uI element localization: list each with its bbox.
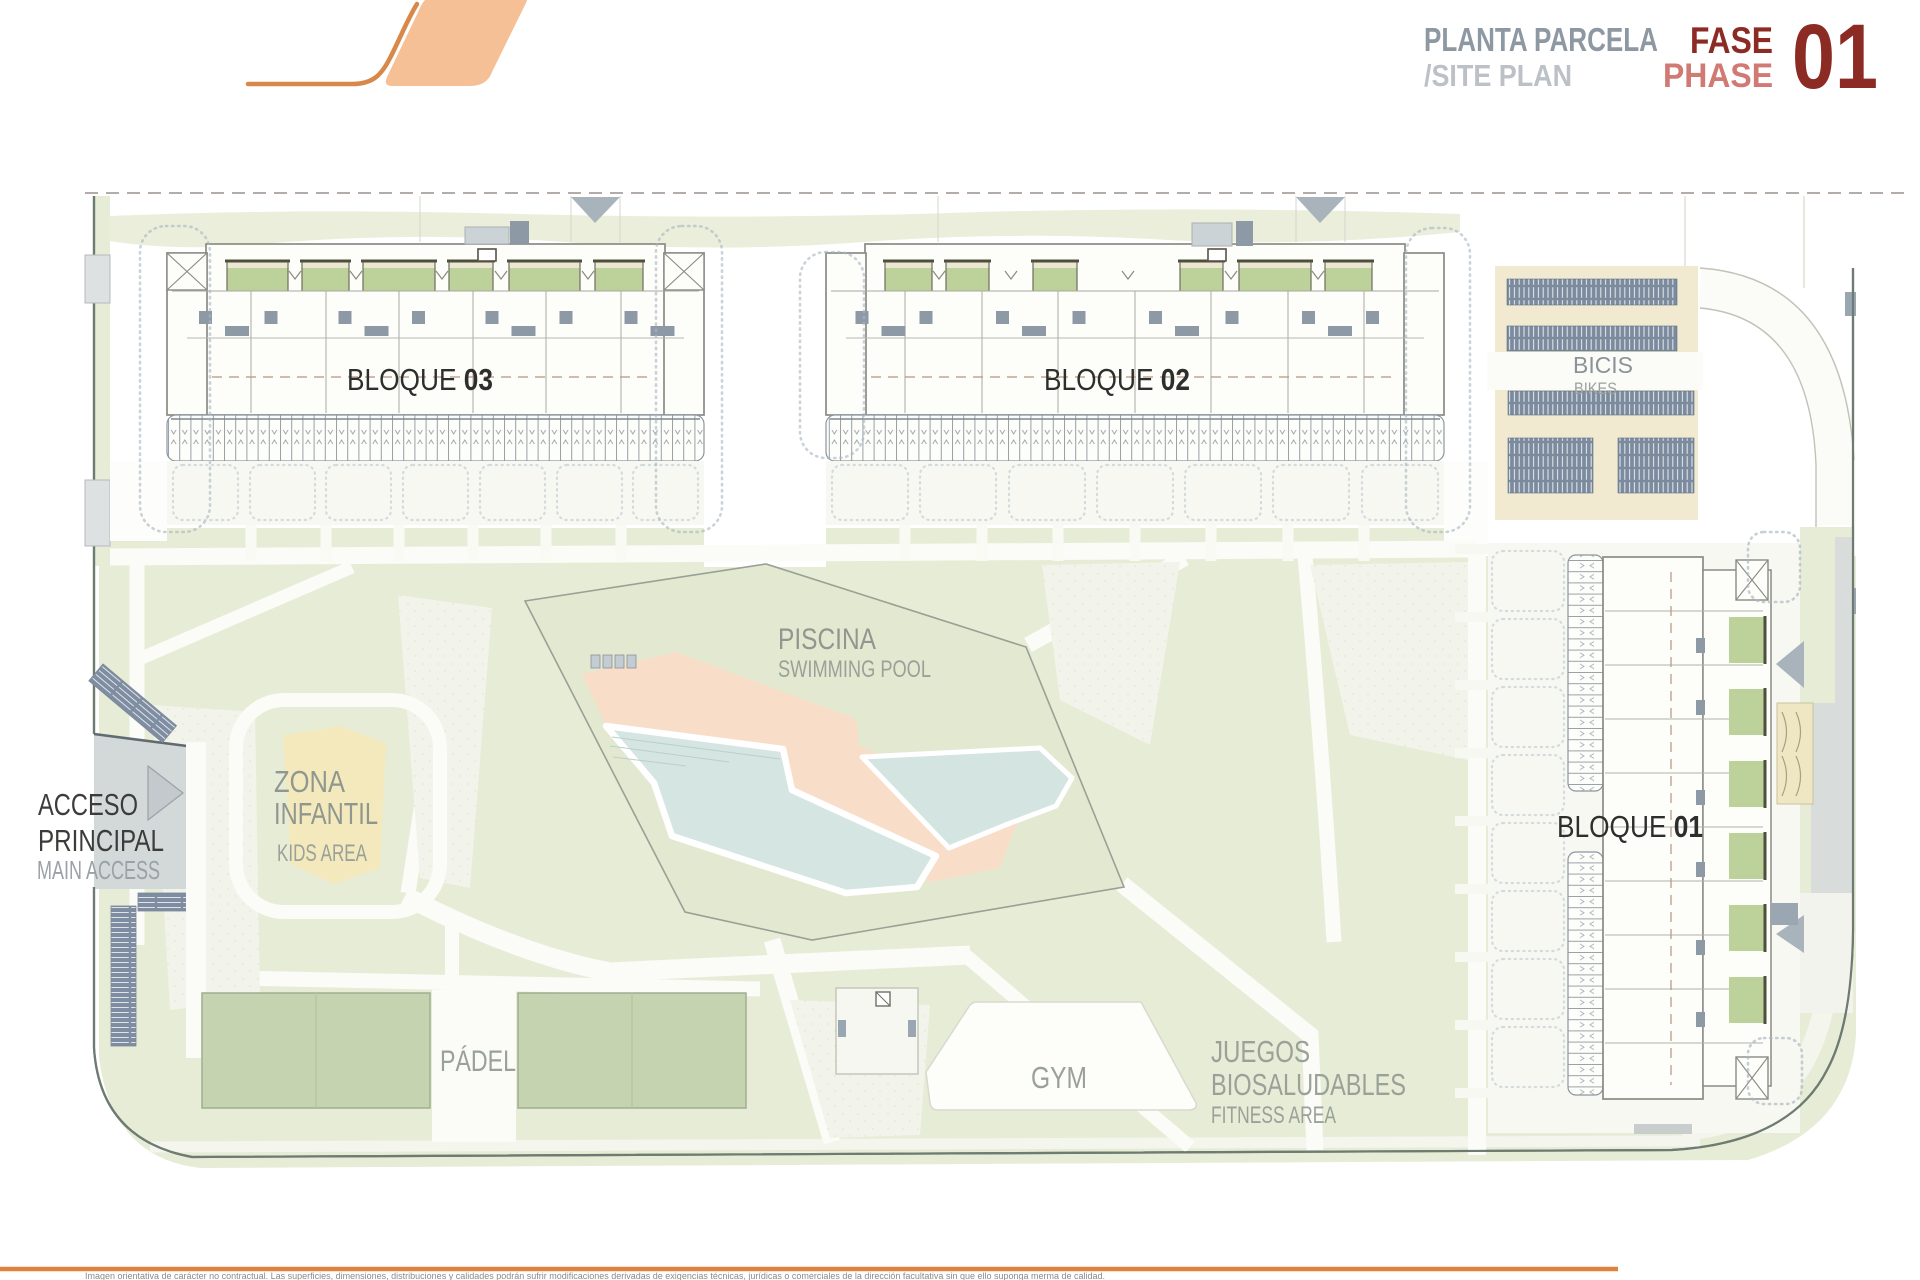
svg-text:PLANTA PARCELA: PLANTA PARCELA	[1424, 21, 1658, 58]
svg-text:JUEGOS: JUEGOS	[1211, 1034, 1310, 1069]
svg-text:PISCINA: PISCINA	[778, 623, 876, 656]
svg-text:/SITE PLAN: /SITE PLAN	[1424, 58, 1572, 93]
svg-text:BLOQUE 03: BLOQUE 03	[347, 362, 493, 397]
svg-text:PRINCIPAL: PRINCIPAL	[38, 823, 164, 858]
svg-text:SWIMMING POOL: SWIMMING POOL	[778, 656, 931, 683]
svg-text:Imagen orientativa de carácter: Imagen orientativa de carácter no contra…	[85, 1271, 1105, 1280]
svg-text:BIKES: BIKES	[1574, 379, 1617, 398]
svg-text:PHASE: PHASE	[1663, 57, 1773, 95]
svg-text:FASE: FASE	[1690, 20, 1773, 61]
svg-text:BLOQUE 01: BLOQUE 01	[1557, 809, 1703, 844]
svg-text:GYM: GYM	[1031, 1060, 1087, 1095]
svg-text:ACCESO: ACCESO	[38, 787, 138, 822]
svg-text:BLOQUE 02: BLOQUE 02	[1044, 362, 1190, 397]
svg-text:FITNESS AREA: FITNESS AREA	[1211, 1102, 1336, 1129]
svg-text:01: 01	[1792, 6, 1878, 108]
svg-text:PÁDEL: PÁDEL	[440, 1045, 516, 1078]
svg-text:ZONA: ZONA	[274, 764, 345, 799]
svg-text:BIOSALUDABLES: BIOSALUDABLES	[1211, 1067, 1406, 1102]
svg-text:KIDS AREA: KIDS AREA	[277, 840, 367, 867]
svg-text:INFANTIL: INFANTIL	[274, 796, 378, 831]
svg-text:MAIN ACCESS: MAIN ACCESS	[37, 855, 160, 885]
svg-text:BICIS: BICIS	[1573, 352, 1633, 378]
